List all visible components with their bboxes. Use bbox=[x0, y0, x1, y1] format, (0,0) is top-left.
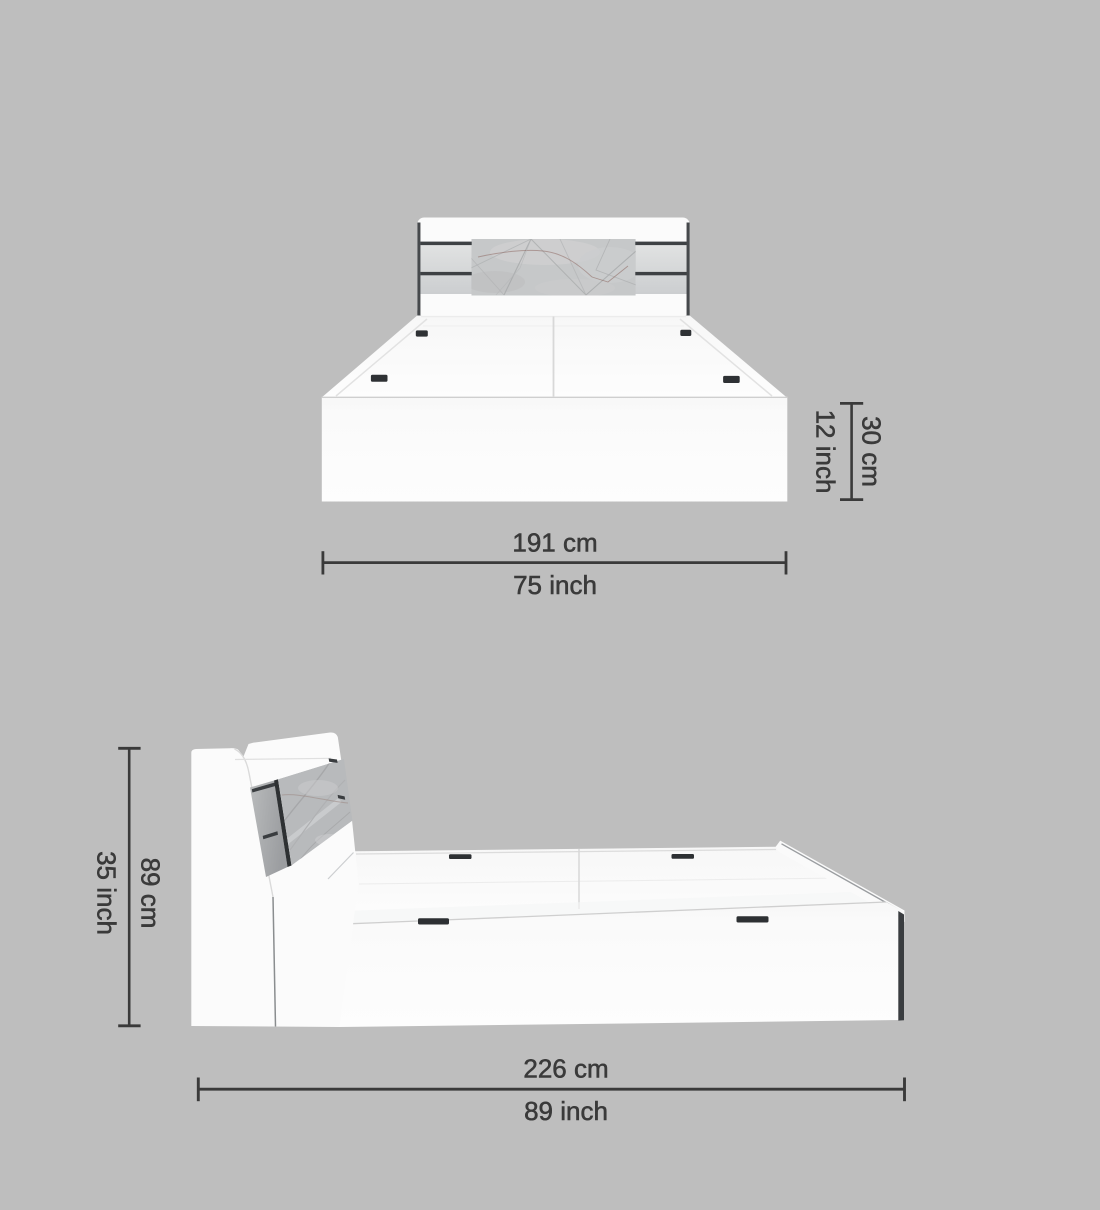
svg-text:12 inch: 12 inch bbox=[811, 410, 841, 494]
svg-text:226 cm: 226 cm bbox=[523, 1053, 608, 1083]
svg-text:30 cm: 30 cm bbox=[857, 416, 887, 487]
svg-text:75 inch: 75 inch bbox=[513, 570, 597, 600]
svg-text:89 cm: 89 cm bbox=[136, 858, 166, 929]
svg-text:191 cm: 191 cm bbox=[512, 527, 597, 557]
svg-text:89 inch: 89 inch bbox=[524, 1096, 608, 1126]
svg-text:35 inch: 35 inch bbox=[92, 851, 122, 935]
